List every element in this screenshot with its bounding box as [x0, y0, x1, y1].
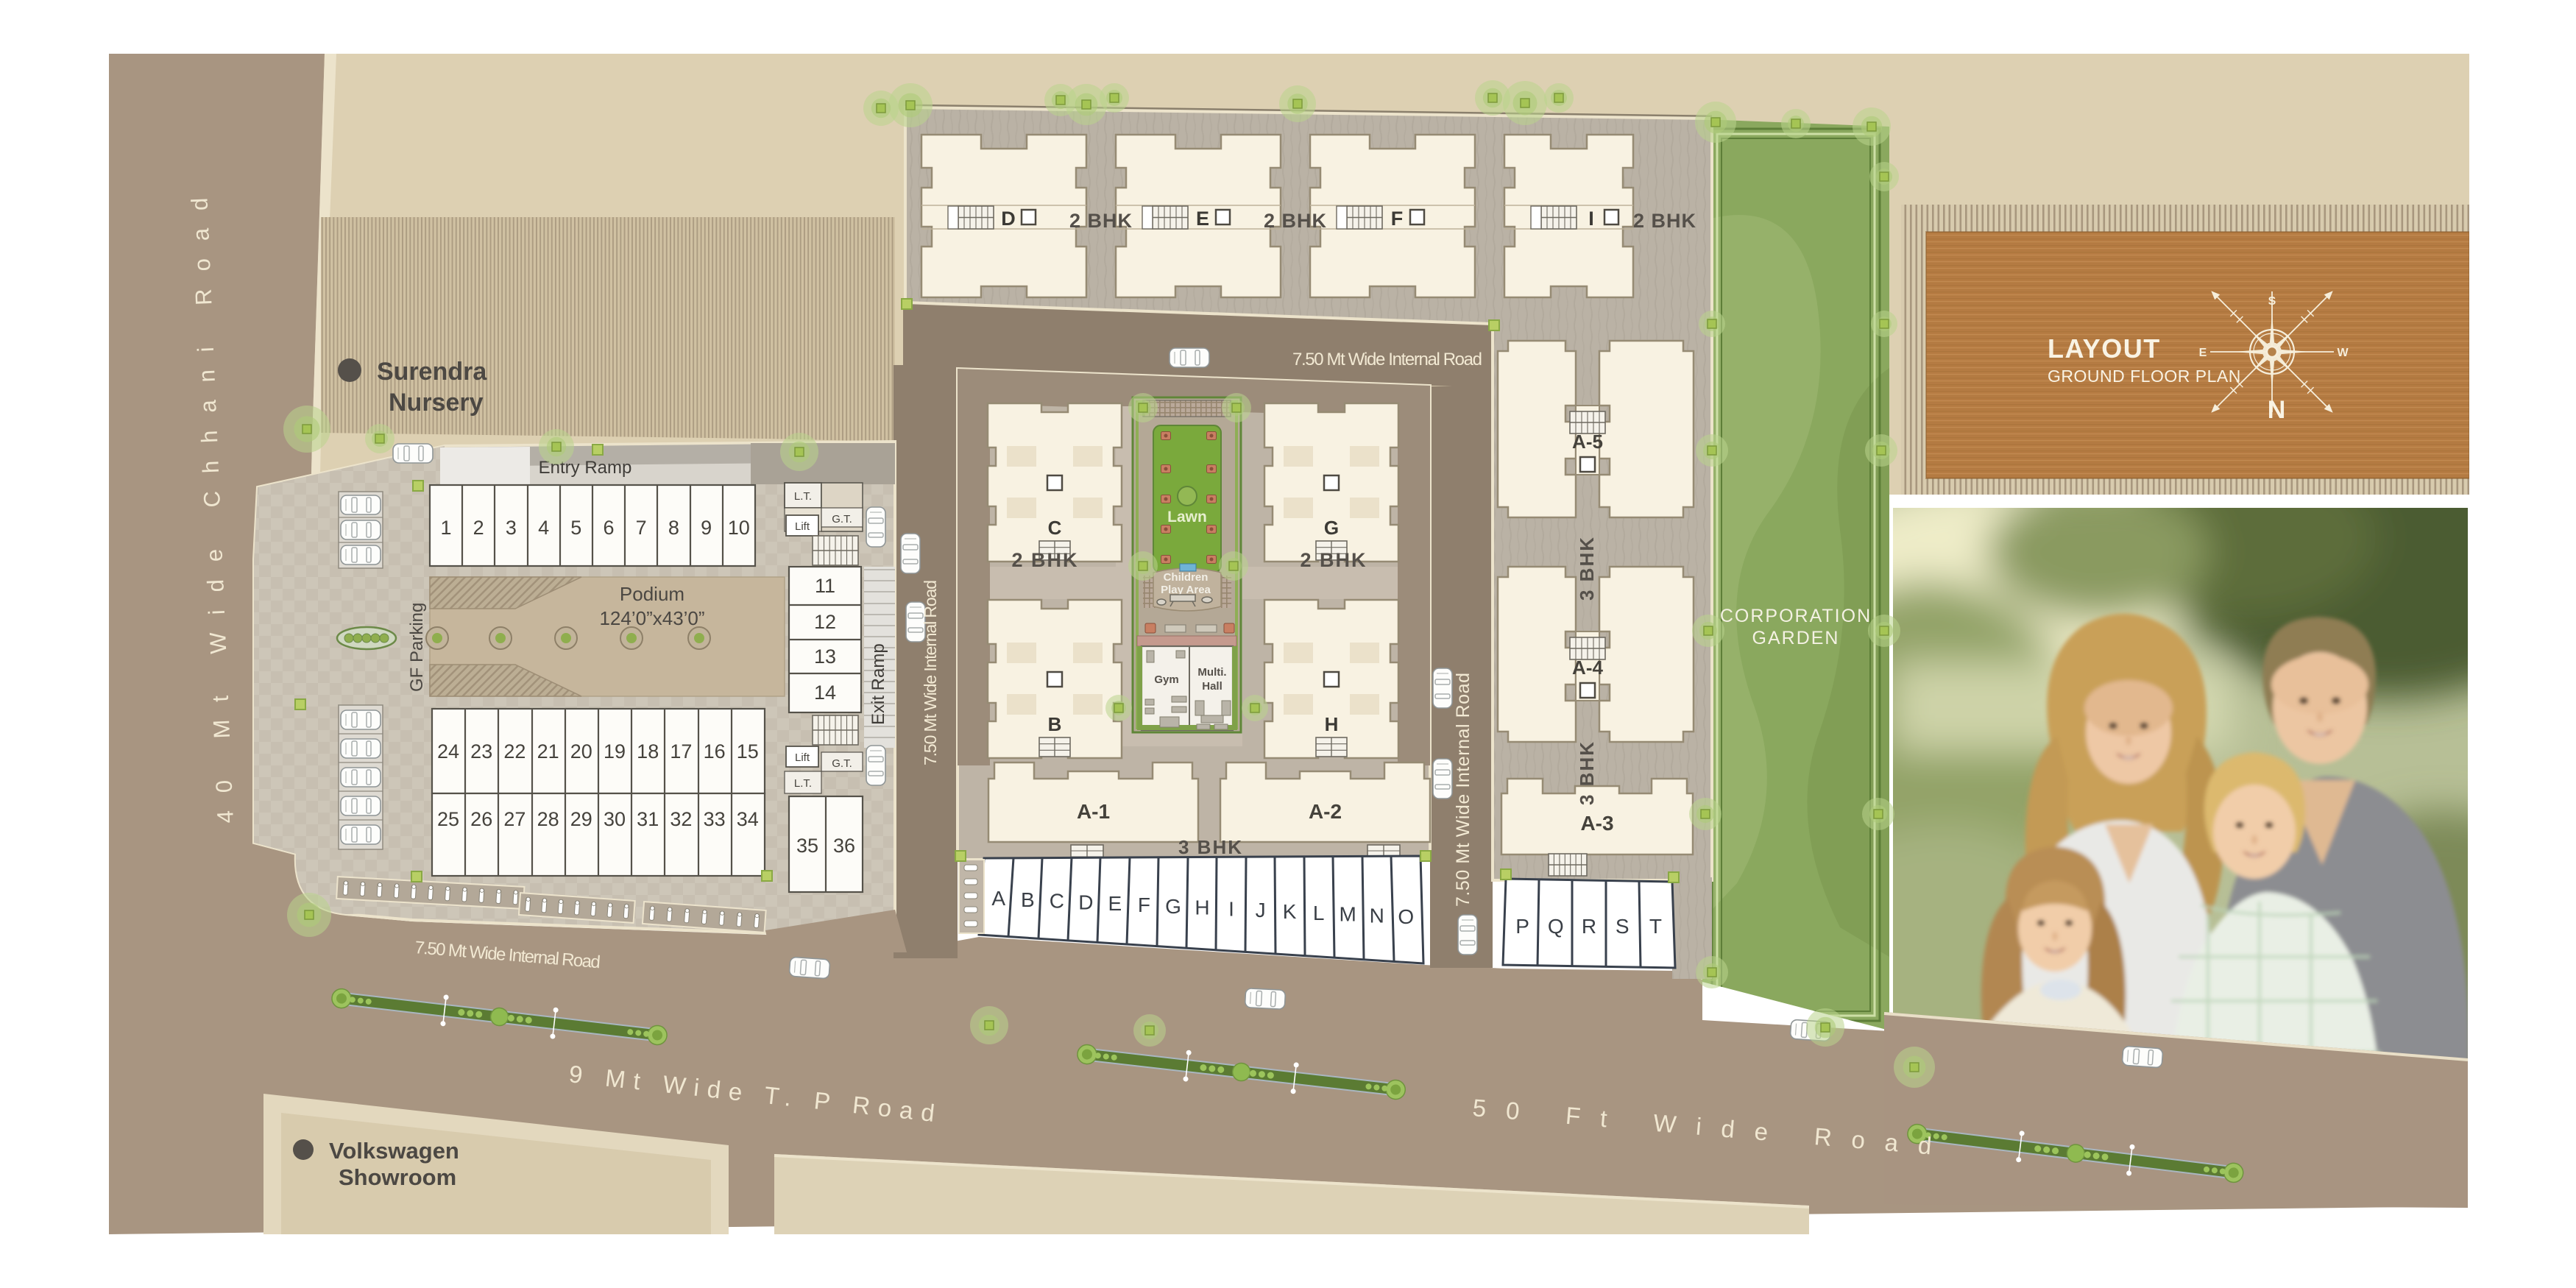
- svg-text:GF Parking: GF Parking: [407, 603, 427, 692]
- svg-text:A-3: A-3: [1580, 812, 1613, 835]
- svg-text:D: D: [1078, 891, 1093, 913]
- svg-text:2 BHK: 2 BHK: [1300, 549, 1367, 571]
- svg-text:34: 34: [737, 808, 759, 830]
- svg-text:A-5: A-5: [1572, 431, 1603, 453]
- svg-text:31: 31: [637, 808, 659, 830]
- svg-text:24: 24: [437, 740, 459, 762]
- svg-text:B: B: [1021, 888, 1035, 911]
- svg-text:E: E: [1108, 892, 1122, 915]
- svg-text:G: G: [1165, 895, 1181, 918]
- svg-text:22: 22: [503, 740, 526, 762]
- svg-text:4: 4: [538, 517, 549, 539]
- svg-text:2 BHK: 2 BHK: [1633, 210, 1696, 232]
- svg-text:12: 12: [814, 611, 836, 633]
- svg-text:LAYOUT: LAYOUT: [2048, 333, 2161, 364]
- svg-text:L: L: [1313, 902, 1325, 924]
- svg-text:7.50 Mt Wide Internal Road: 7.50 Mt Wide Internal Road: [921, 580, 940, 765]
- svg-text:6: 6: [603, 517, 614, 539]
- svg-text:19: 19: [604, 740, 626, 762]
- svg-text:S: S: [1616, 915, 1630, 938]
- svg-text:30: 30: [604, 808, 626, 830]
- svg-text:A: A: [991, 887, 1005, 910]
- svg-text:3: 3: [506, 517, 517, 539]
- svg-text:G.T.: G.T.: [832, 513, 852, 526]
- svg-text:T: T: [1649, 915, 1662, 938]
- svg-text:A-1: A-1: [1077, 800, 1110, 823]
- svg-text:21: 21: [537, 740, 559, 762]
- svg-text:Nursery: Nursery: [389, 389, 484, 417]
- svg-text:M: M: [1340, 903, 1356, 926]
- svg-text:2: 2: [473, 517, 484, 539]
- svg-text:16: 16: [704, 740, 726, 762]
- svg-text:B: B: [1048, 713, 1062, 735]
- svg-text:C: C: [1048, 517, 1062, 539]
- svg-text:E: E: [1196, 208, 1209, 230]
- svg-text:Multi.: Multi.: [1197, 666, 1226, 679]
- svg-text:1: 1: [440, 517, 451, 539]
- svg-text:N: N: [2268, 396, 2286, 424]
- svg-text:G: G: [1324, 517, 1339, 539]
- svg-text:5: 5: [570, 517, 581, 539]
- svg-text:Exit Ramp: Exit Ramp: [868, 643, 888, 725]
- svg-text:Volkswagen: Volkswagen: [329, 1138, 459, 1164]
- svg-text:33: 33: [704, 808, 726, 830]
- svg-text:L.T.: L.T.: [794, 490, 812, 503]
- svg-text:124’0”x43’0”: 124’0”x43’0”: [599, 607, 704, 629]
- svg-text:27: 27: [503, 808, 526, 830]
- svg-text:A-2: A-2: [1309, 800, 1342, 823]
- svg-text:N: N: [1370, 904, 1384, 927]
- svg-text:F: F: [1138, 894, 1150, 916]
- svg-text:2 BHK: 2 BHK: [1069, 210, 1133, 232]
- svg-text:Showroom: Showroom: [339, 1164, 456, 1190]
- svg-text:Hall: Hall: [1202, 680, 1222, 693]
- svg-text:25: 25: [437, 808, 459, 830]
- svg-text:9: 9: [701, 517, 712, 539]
- svg-text:29: 29: [570, 808, 592, 830]
- svg-text:E: E: [2199, 347, 2207, 359]
- svg-text:H: H: [1195, 896, 1209, 919]
- svg-text:Lift: Lift: [795, 520, 810, 533]
- svg-text:2 BHK: 2 BHK: [1011, 549, 1078, 571]
- svg-text:L.T.: L.T.: [794, 777, 812, 790]
- svg-text:13: 13: [814, 645, 836, 668]
- svg-text:J: J: [1256, 899, 1266, 921]
- svg-text:Lift: Lift: [795, 751, 810, 764]
- svg-text:11: 11: [815, 575, 835, 597]
- svg-text:10: 10: [728, 517, 750, 539]
- svg-text:32: 32: [670, 808, 692, 830]
- svg-text:Gym: Gym: [1154, 673, 1178, 686]
- svg-text:CORPORATION: CORPORATION: [1720, 606, 1872, 626]
- svg-text:15: 15: [737, 740, 759, 762]
- svg-text:Q: Q: [1548, 915, 1564, 938]
- svg-text:23: 23: [470, 740, 492, 762]
- svg-text:O: O: [1398, 905, 1414, 928]
- svg-text:28: 28: [537, 808, 559, 830]
- svg-text:Children: Children: [1164, 571, 1209, 584]
- svg-text:8: 8: [668, 517, 679, 539]
- svg-text:3 BHK: 3 BHK: [1576, 740, 1598, 805]
- svg-text:W: W: [2337, 347, 2349, 359]
- svg-text:14: 14: [814, 682, 836, 704]
- svg-text:36: 36: [833, 835, 855, 857]
- svg-text:26: 26: [470, 808, 492, 830]
- svg-text:Podium: Podium: [620, 583, 684, 605]
- svg-text:Surendra: Surendra: [377, 358, 487, 386]
- svg-text:7: 7: [636, 517, 647, 539]
- svg-text:I: I: [1228, 897, 1234, 920]
- svg-text:GARDEN: GARDEN: [1752, 628, 1840, 648]
- svg-text:I: I: [1588, 208, 1594, 230]
- svg-text:Lawn: Lawn: [1167, 509, 1207, 526]
- svg-text:D: D: [1001, 208, 1016, 230]
- svg-text:K: K: [1283, 900, 1297, 923]
- svg-text:7.50 Mt Wide Internal Road: 7.50 Mt Wide Internal Road: [1453, 673, 1473, 907]
- svg-text:18: 18: [637, 740, 659, 762]
- svg-text:2 BHK: 2 BHK: [1264, 210, 1327, 232]
- svg-text:3 BHK: 3 BHK: [1178, 836, 1243, 858]
- svg-text:7.50 Mt Wide Internal Road: 7.50 Mt Wide Internal Road: [1292, 350, 1482, 369]
- svg-text:S: S: [2268, 295, 2276, 308]
- svg-text:R: R: [1582, 915, 1596, 938]
- svg-text:A-4: A-4: [1572, 657, 1603, 679]
- svg-text:3 BHK: 3 BHK: [1576, 536, 1598, 601]
- svg-text:G.T.: G.T.: [832, 757, 852, 770]
- svg-text:H: H: [1325, 713, 1339, 735]
- svg-text:20: 20: [570, 740, 592, 762]
- svg-text:17: 17: [670, 740, 692, 762]
- svg-text:F: F: [1391, 208, 1404, 230]
- svg-text:GROUND FLOOR PLAN: GROUND FLOOR PLAN: [2048, 367, 2241, 386]
- svg-text:35: 35: [796, 835, 818, 857]
- svg-text:P: P: [1515, 915, 1529, 938]
- svg-text:C: C: [1050, 890, 1064, 913]
